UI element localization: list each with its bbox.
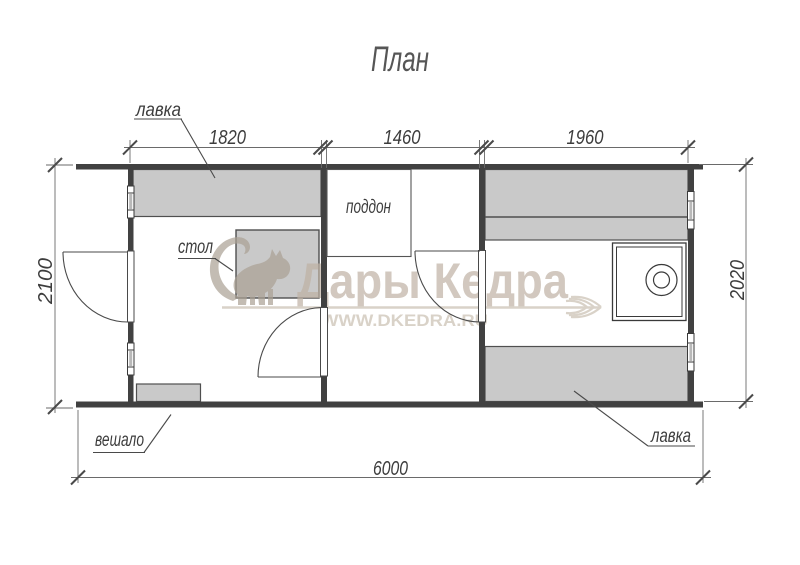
svg-text:лавка: лавка (135, 100, 181, 121)
svg-text:1960: 1960 (567, 127, 604, 149)
svg-text:вешало: вешало (95, 430, 144, 451)
svg-text:2100: 2100 (35, 258, 57, 305)
svg-text:лавка: лавка (650, 426, 691, 447)
svg-text:WWW.DKEDRA.RU: WWW.DKEDRA.RU (321, 312, 488, 330)
svg-text:стол: стол (178, 237, 213, 258)
svg-text:2020: 2020 (727, 260, 749, 301)
svg-text:поддон: поддон (346, 197, 391, 218)
svg-text:План: План (371, 40, 429, 79)
svg-text:1820: 1820 (209, 127, 246, 149)
svg-text:1460: 1460 (384, 127, 421, 149)
svg-text:6000: 6000 (373, 458, 408, 480)
